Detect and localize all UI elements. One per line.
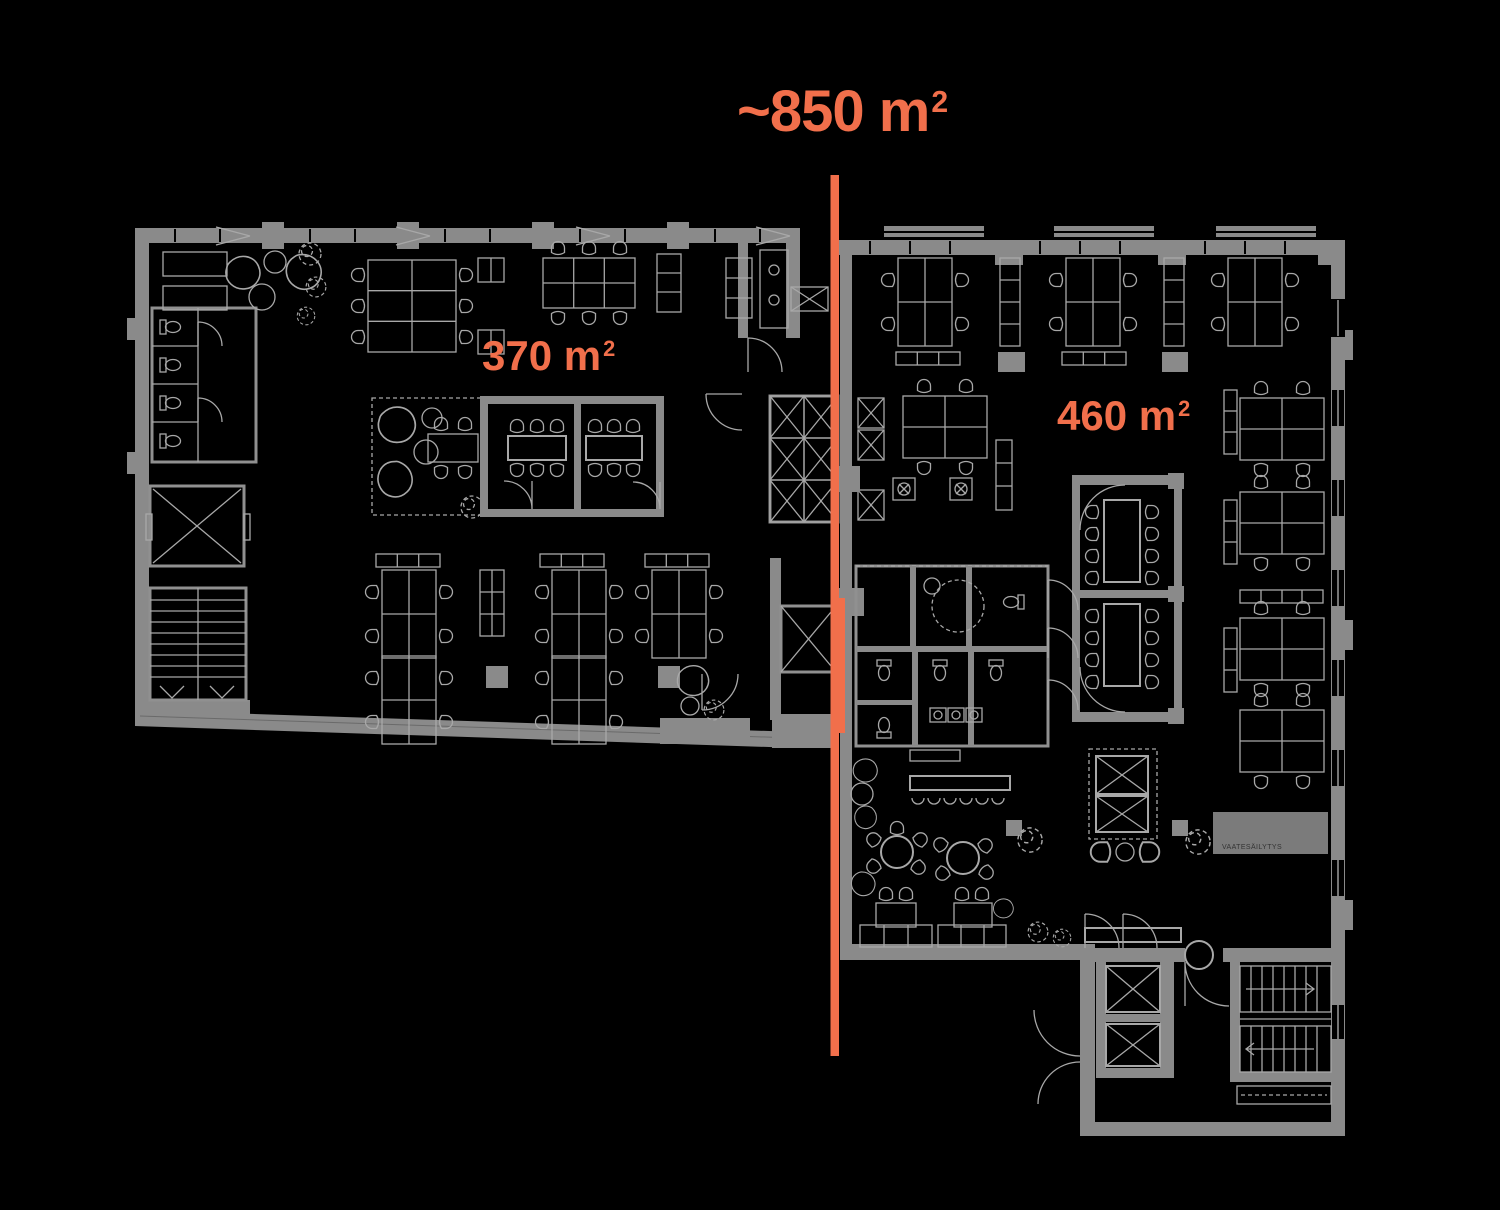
cabinet (1000, 258, 1020, 346)
left-area-label: 370 m2 (482, 335, 615, 377)
stairs-left (150, 588, 246, 700)
total-area-label: ~850 m2 (737, 83, 947, 141)
total-area-value: ~850 m (737, 79, 929, 144)
meeting-rooms-right (1072, 473, 1184, 724)
wardrobe: VAATESÄILYTYS (1213, 812, 1328, 854)
copier (893, 440, 1012, 510)
left-area-value: 370 m (482, 332, 601, 379)
desk-rows-lower (366, 554, 739, 744)
desk-cluster (352, 260, 473, 352)
left-wing-left-wall (135, 228, 149, 726)
floor-plan: VAATESÄILYTYS (0, 0, 1500, 1210)
entry-lounge-furniture (226, 243, 328, 325)
right-area-label: 460 m2 (1057, 395, 1190, 437)
desk-cluster (543, 242, 635, 325)
total-area-superscript: 2 (931, 86, 947, 119)
right-area-superscript: 2 (1178, 396, 1190, 421)
elevator-left (146, 486, 250, 566)
right-wing-top-wall (838, 240, 1345, 255)
cafe-area (846, 750, 1210, 947)
right-area-value: 460 m (1057, 392, 1176, 439)
desk-cluster (882, 258, 969, 346)
left-wing-top-wall (135, 228, 800, 243)
cabinet (657, 254, 752, 318)
cloakroom-strip (1237, 1086, 1331, 1104)
floorplan-page: VAATESÄILYTYS (0, 0, 1500, 1210)
service-room (163, 252, 227, 276)
desk-cluster (1212, 258, 1299, 346)
core-extension (1034, 962, 1331, 1104)
column (1185, 941, 1213, 969)
desk-column-right (1224, 382, 1324, 789)
meeting-rooms-left (480, 396, 664, 517)
lounge-area (372, 398, 484, 518)
service-room (163, 286, 227, 310)
shaft-elevator (1089, 749, 1159, 862)
right-wing-plan: VAATESÄILYTYS (838, 226, 1353, 1136)
cabinet (1164, 258, 1184, 346)
wc-block-right (856, 566, 1078, 746)
wardrobe-label: VAATESÄILYTYS (1222, 843, 1282, 851)
desk-cluster (903, 380, 987, 475)
wc-block-left (152, 308, 256, 462)
desk-cluster (1050, 258, 1137, 346)
right-wing-left-wall (840, 240, 852, 945)
left-wing-plan (127, 222, 828, 748)
stairs-right (1230, 962, 1331, 1082)
left-area-superscript: 2 (603, 336, 615, 361)
kitchenette (748, 250, 828, 372)
